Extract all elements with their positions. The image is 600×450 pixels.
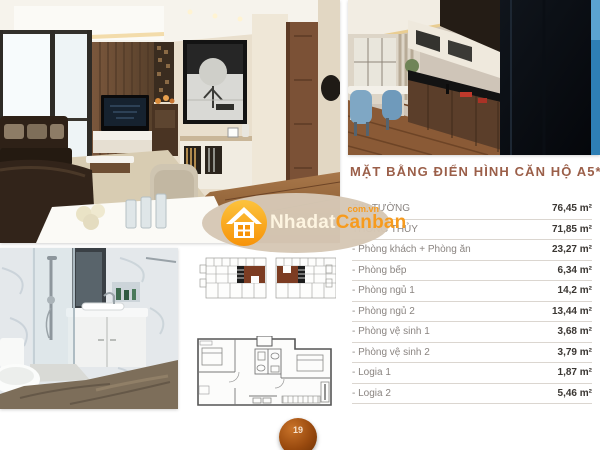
- floor-keyplan: [196, 255, 336, 302]
- table-row: - Logia 11,87 m²: [352, 363, 592, 384]
- watermark: NhadatCanban com.vn: [202, 193, 390, 253]
- table-row: - Phòng bếp6,34 m²: [352, 261, 592, 282]
- area-value: 13,44 m²: [552, 306, 592, 317]
- watermark-domain: com.vn: [347, 204, 379, 214]
- area-value: 1,87 m²: [558, 367, 592, 378]
- area-label: - Logia 2: [352, 388, 391, 399]
- bathroom-illustration: [0, 248, 178, 409]
- plan-section-title: MẶT BẰNG ĐIỂN HÌNH CĂN HỘ A5*: [350, 164, 596, 179]
- brochure-page: MẶT BẰNG ĐIỂN HÌNH CĂN HỘ A5* TIM TƯỜNG7…: [0, 0, 600, 450]
- area-value: 3,79 m²: [558, 347, 592, 358]
- unit-floorplan-drawing: [197, 336, 332, 408]
- table-row: - Phòng khách + Phòng ăn23,27 m²: [352, 240, 592, 261]
- area-label: - Phòng ngủ 2: [352, 306, 415, 317]
- table-row: - Phòng vệ sinh 23,79 m²: [352, 343, 592, 364]
- area-label: - Phòng vệ sinh 1: [352, 326, 430, 337]
- brand-part-secondary: Canban: [336, 212, 407, 233]
- area-value: 5,46 m²: [558, 388, 592, 399]
- area-label: - Phòng ngủ 1: [352, 285, 415, 296]
- area-label: - Phòng bếp: [352, 265, 407, 276]
- brand-part-primary: Nhadat: [270, 212, 336, 233]
- area-label: - Phòng khách + Phòng ăn: [352, 244, 471, 255]
- area-value: 23,27 m²: [552, 244, 592, 255]
- table-row: - Phòng vệ sinh 13,68 m²: [352, 322, 592, 343]
- unit-floorplan: [197, 336, 332, 408]
- table-row: - Logia 25,46 m²: [352, 384, 592, 405]
- bathroom-photo: [0, 248, 178, 409]
- area-value: 6,34 m²: [558, 265, 592, 276]
- area-value: 71,85 m²: [552, 224, 592, 235]
- area-label: - Logia 1: [352, 367, 391, 378]
- keyplan-drawing: [196, 255, 336, 302]
- kitchen-photo: [348, 0, 600, 155]
- kitchen-illustration: [348, 0, 600, 155]
- page-number: 19: [293, 425, 303, 435]
- area-value: 76,45 m²: [552, 203, 592, 214]
- table-row: - Phòng ngủ 114,2 m²: [352, 281, 592, 302]
- house-icon: [221, 200, 267, 246]
- area-value: 3,68 m²: [558, 326, 592, 337]
- page-number-badge: 19: [279, 418, 317, 450]
- table-row: - Phòng ngủ 213,44 m²: [352, 302, 592, 323]
- watermark-brand: NhadatCanban: [270, 212, 406, 234]
- area-value: 14,2 m²: [558, 285, 592, 296]
- area-label: - Phòng vệ sinh 2: [352, 347, 430, 358]
